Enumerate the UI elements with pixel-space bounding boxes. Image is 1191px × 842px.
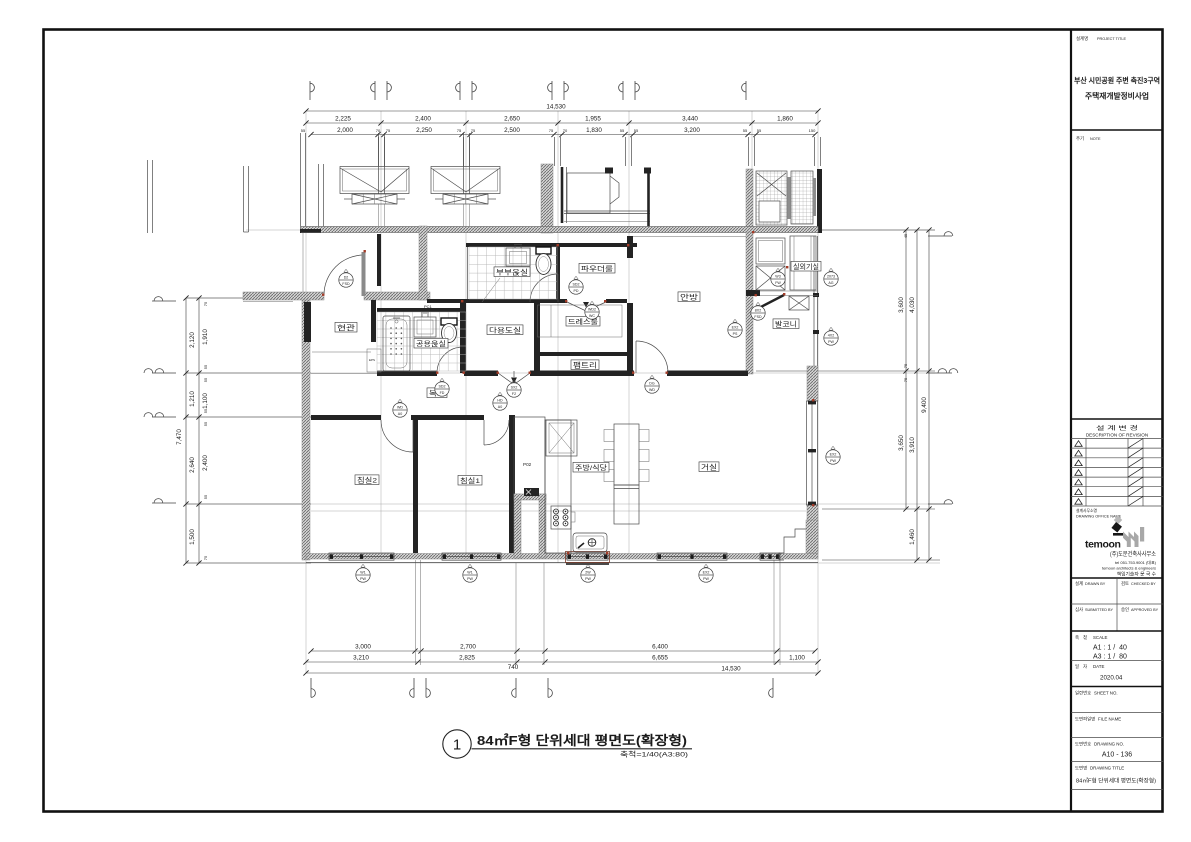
svg-text:2,400: 2,400 <box>202 455 209 471</box>
svg-text:책임기술자 문 국 수: 책임기술자 문 국 수 <box>1117 571 1157 578</box>
svg-text:축척=1/40(A3:80): 축척=1/40(A3:80) <box>620 750 688 759</box>
svg-text:PW: PW <box>585 577 591 581</box>
svg-text:EX2: EX2 <box>830 452 837 456</box>
svg-text:AG: AG <box>828 281 833 285</box>
svg-text:55: 55 <box>203 364 208 369</box>
svg-text:파우더룰: 파우더룰 <box>581 264 613 273</box>
svg-text:자: 자 <box>1083 663 1087 670</box>
svg-text:14,530: 14,530 <box>546 104 566 111</box>
svg-text:SD2: SD2 <box>439 384 446 388</box>
svg-text:공용욵실: 공용욵실 <box>416 339 446 348</box>
svg-text:740: 740 <box>508 664 519 671</box>
svg-text:temoon: temoon <box>1085 539 1121 551</box>
svg-text:PW: PW <box>830 459 836 463</box>
svg-text:A1 : 1 / 40: A1 : 1 / 40 <box>1093 645 1127 652</box>
svg-text:55: 55 <box>620 128 625 133</box>
svg-text:승인: 승인 <box>1121 606 1129 612</box>
svg-text:55: 55 <box>757 128 762 133</box>
svg-text:2,000: 2,000 <box>337 127 353 134</box>
svg-text:150: 150 <box>809 128 816 133</box>
svg-text:A10 - 136: A10 - 136 <box>1102 752 1132 759</box>
svg-text:3,000: 3,000 <box>355 644 371 651</box>
svg-text:P02: P02 <box>523 462 532 467</box>
svg-text:3,440: 3,440 <box>682 116 698 123</box>
svg-text:temoon architects & engineers: temoon architects & engineers <box>1102 566 1156 571</box>
svg-text:부부욵실: 부부욵실 <box>496 268 528 277</box>
svg-text:6,655: 6,655 <box>652 655 668 662</box>
svg-text:3,200: 3,200 <box>684 127 700 134</box>
svg-text:1,100: 1,100 <box>202 393 209 409</box>
svg-text:침실1: 침실1 <box>460 476 480 485</box>
svg-text:DG: DG <box>649 381 655 385</box>
svg-text:2,120: 2,120 <box>189 332 196 348</box>
svg-text:설계사무소명: 설계사무소명 <box>1076 508 1097 513</box>
svg-text:설계명: 설계명 <box>1076 35 1088 42</box>
svg-text:1,830: 1,830 <box>586 127 602 134</box>
svg-text:EX2: EX2 <box>732 325 739 329</box>
svg-text:도면번호: 도면번호 <box>1075 741 1091 747</box>
svg-text:FSD: FSD <box>342 282 350 286</box>
svg-text:1,460: 1,460 <box>909 529 916 545</box>
svg-text:발코니: 발코니 <box>775 320 797 329</box>
svg-text:도면명: 도면명 <box>1075 765 1087 771</box>
svg-text:HD: HD <box>497 398 503 402</box>
svg-text:75: 75 <box>203 555 208 560</box>
svg-text:75: 75 <box>549 128 554 133</box>
svg-text:부산 시민공원 주변 축진3구역: 부산 시민공원 주변 축진3구역 <box>1074 76 1160 85</box>
svg-text:A3 : 1 / 80: A3 : 1 / 80 <box>1093 654 1127 661</box>
svg-text:2,650: 2,650 <box>504 116 520 123</box>
svg-text:FD: FD <box>440 391 445 395</box>
svg-text:PW: PW <box>828 340 834 344</box>
svg-text:3,210: 3,210 <box>353 655 369 662</box>
svg-text:안방: 안방 <box>680 293 698 302</box>
svg-text:FILE NAME: FILE NAME <box>1098 717 1121 722</box>
svg-text:2,250: 2,250 <box>416 127 432 134</box>
svg-text:1,500: 1,500 <box>189 529 196 545</box>
svg-text:55: 55 <box>634 128 639 133</box>
svg-text:75: 75 <box>203 301 208 306</box>
svg-text:현관: 현관 <box>337 323 355 332</box>
svg-text:일련번호: 일련번호 <box>1075 690 1091 696</box>
svg-text:PW: PW <box>703 577 709 581</box>
svg-text:70: 70 <box>376 128 381 133</box>
svg-text:DRAWING NO.: DRAWING NO. <box>1094 742 1124 747</box>
svg-text:1,210: 1,210 <box>189 391 196 407</box>
svg-text:DRAWING TITLE: DRAWING TITLE <box>1090 766 1124 771</box>
svg-text:EPS: EPS <box>369 358 375 362</box>
svg-text:4X2: 4X2 <box>828 333 834 337</box>
svg-text:F2: F2 <box>512 392 516 396</box>
svg-text:2W: 2W <box>585 570 591 574</box>
svg-text:84㎡F형 단위세대 평면도(확장형): 84㎡F형 단위세대 평면도(확장형) <box>1076 777 1156 785</box>
svg-text:PROJECT TITLE: PROJECT TITLE <box>1097 37 1126 41</box>
svg-text:(주)도문건축사사무소: (주)도문건축사사무소 <box>1110 550 1156 558</box>
svg-text:주기: 주기 <box>1076 135 1084 142</box>
svg-text:8X2: 8X2 <box>755 308 761 312</box>
svg-text:DRAWING OFFICE NAME: DRAWING OFFICE NAME <box>1076 515 1122 519</box>
svg-text:55: 55 <box>203 377 208 382</box>
svg-text:PW: PW <box>360 577 366 581</box>
svg-text:DESCRIPTION OF REVISION: DESCRIPTION OF REVISION <box>1086 433 1148 438</box>
svg-text:WD2: WD2 <box>588 307 596 311</box>
svg-text:NOTE: NOTE <box>1090 137 1101 141</box>
svg-text:1,100: 1,100 <box>789 655 805 662</box>
svg-text:DRAWN BY: DRAWN BY <box>1085 582 1106 586</box>
svg-text:설계: 설계 <box>1075 580 1083 587</box>
svg-text:WC: WC <box>589 314 595 318</box>
svg-text:W3: W3 <box>775 274 780 278</box>
svg-text:침실2: 침실2 <box>357 476 377 485</box>
svg-text:75: 75 <box>457 128 462 133</box>
svg-text:A0: A0 <box>498 405 502 409</box>
svg-text:D2: D2 <box>344 275 349 279</box>
svg-text:75: 75 <box>903 377 908 382</box>
svg-text:70: 70 <box>563 128 568 133</box>
svg-text:EX2: EX2 <box>703 570 710 574</box>
svg-text:WD: WD <box>649 388 655 392</box>
svg-text:84㎡F형 단위세대 평면도(확장형): 84㎡F형 단위세대 평면도(확장형) <box>477 733 687 748</box>
svg-text:75: 75 <box>471 128 476 133</box>
svg-text:WD: WD <box>397 405 403 409</box>
svg-text:실외기실: 실외기실 <box>793 262 819 271</box>
svg-text:1: 1 <box>453 737 461 754</box>
svg-text:2,640: 2,640 <box>189 457 196 473</box>
svg-text:1,955: 1,955 <box>585 116 601 123</box>
svg-text:4,030: 4,030 <box>909 297 916 313</box>
svg-text:45: 45 <box>903 233 908 238</box>
svg-text:55: 55 <box>203 421 208 426</box>
svg-text:55: 55 <box>203 408 208 413</box>
svg-text:3,910: 3,910 <box>909 437 916 453</box>
svg-text:14,530: 14,530 <box>721 666 741 673</box>
svg-text:PC1: PC1 <box>424 304 433 309</box>
svg-text:거실: 거실 <box>701 463 717 472</box>
svg-text:W1: W1 <box>360 570 365 574</box>
svg-text:SUBMITTED BY: SUBMITTED BY <box>1085 608 1114 612</box>
svg-text:팸트리: 팸트리 <box>573 361 597 370</box>
svg-text:2,700: 2,700 <box>460 644 476 651</box>
svg-text:FW: FW <box>775 281 781 285</box>
svg-text:75: 75 <box>386 128 391 133</box>
svg-text:tel 051.753.9001 (대표): tel 051.753.9001 (대표) <box>1115 559 1157 565</box>
svg-text:2,400: 2,400 <box>415 116 431 123</box>
svg-text:SX2: SX2 <box>511 385 518 389</box>
svg-text:APPROVED BY: APPROVED BY <box>1131 608 1159 612</box>
svg-text:3,600: 3,600 <box>898 297 905 313</box>
svg-text:설 계 변 경: 설 계 변 경 <box>1096 424 1138 432</box>
svg-text:PW: PW <box>467 577 473 581</box>
svg-text:6,400: 6,400 <box>652 644 668 651</box>
svg-text:75: 75 <box>903 363 908 368</box>
svg-text:축: 축 <box>1075 634 1079 641</box>
svg-text:2020.04: 2020.04 <box>1100 675 1123 682</box>
svg-text:3,650: 3,650 <box>898 435 905 451</box>
svg-text:주택재개발정비사업: 주택재개발정비사업 <box>1085 92 1149 101</box>
svg-text:2,500: 2,500 <box>504 127 520 134</box>
svg-text:SD2: SD2 <box>573 282 580 286</box>
svg-text:2073: 2073 <box>827 274 835 278</box>
svg-text:55: 55 <box>203 494 208 499</box>
svg-text:도면파일명: 도면파일명 <box>1075 716 1095 723</box>
svg-text:55: 55 <box>743 128 748 133</box>
svg-text:1,860: 1,860 <box>777 116 793 123</box>
svg-text:PD: PD <box>574 289 579 293</box>
svg-text:2,825: 2,825 <box>459 655 475 662</box>
svg-text:SHEET NO.: SHEET NO. <box>1094 691 1118 696</box>
svg-text:1,910: 1,910 <box>202 329 209 345</box>
svg-text:2,225: 2,225 <box>335 116 351 123</box>
svg-text:CHECKED BY: CHECKED BY <box>1131 582 1156 586</box>
svg-text:9,400: 9,400 <box>921 397 928 413</box>
svg-text:심사: 심사 <box>1075 606 1083 613</box>
svg-text:검토: 검토 <box>1121 580 1129 586</box>
svg-text:7,470: 7,470 <box>176 429 183 445</box>
svg-text:주방/식당: 주방/식당 <box>575 463 607 472</box>
svg-text:일: 일 <box>1075 663 1079 669</box>
svg-text:SCALE: SCALE <box>1093 635 1107 640</box>
svg-text:다용도실: 다용도실 <box>489 326 521 335</box>
svg-text:FSD: FSD <box>754 315 762 319</box>
svg-text:A0: A0 <box>398 412 402 416</box>
svg-text:PS: PS <box>733 332 738 336</box>
svg-text:W1: W1 <box>467 570 472 574</box>
svg-text:55: 55 <box>301 128 306 133</box>
svg-text:DATE: DATE <box>1093 664 1104 669</box>
